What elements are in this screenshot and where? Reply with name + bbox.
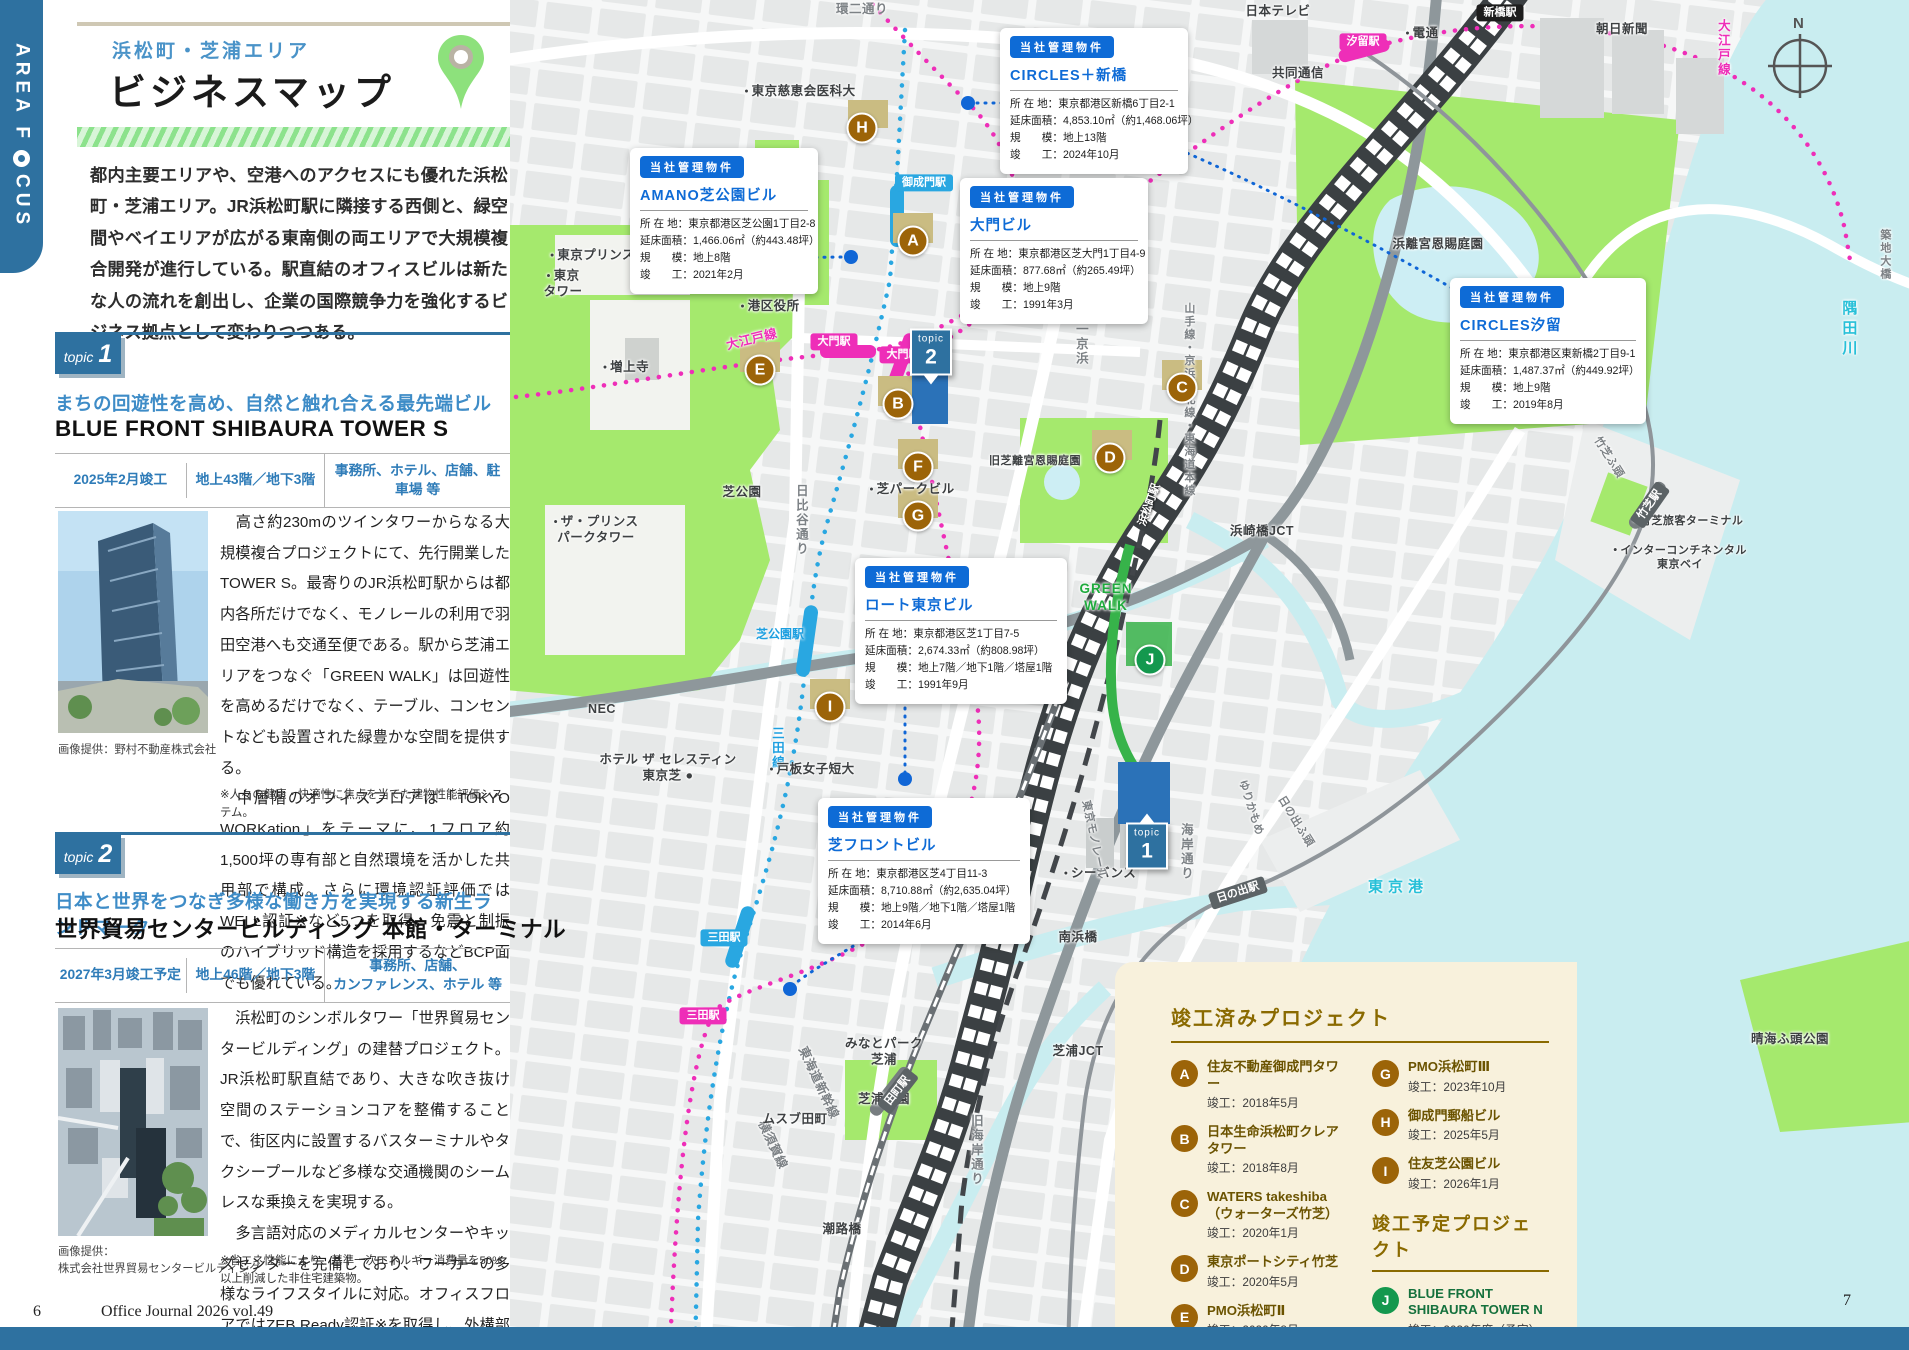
property-detail-row: 規 模：地上9階 (1460, 380, 1636, 397)
property-detail-row: 規 模：地上9階 (970, 280, 1138, 297)
map-label: 海岸通り (1177, 823, 1193, 881)
map-label: 電通 (1405, 26, 1438, 42)
map-label: GREEN WALK (1079, 581, 1132, 615)
map-label: 竹芝ふ頭 (1590, 435, 1626, 481)
station-label: 大門駅 (811, 333, 858, 350)
property-detail-row: 竣 工：1991年3月 (970, 297, 1138, 314)
map-label: 隅田川 (1839, 300, 1858, 360)
property-detail-row: 延床面積：877.68㎡（約265.49坪） (970, 263, 1138, 280)
map-label: 環二通り (836, 2, 888, 18)
property-callout-header: 当社管理物件 (865, 566, 969, 588)
map-label: 芝浦JCT (1052, 1044, 1103, 1060)
property-detail-row: 延床面積：4,853.10㎡（約1,468.06坪） (1010, 113, 1178, 130)
property-detail-row: 所 在 地：東京都港区新橋6丁目2-1 (1010, 96, 1178, 113)
property-detail-row: 竣 工：2014年6月 (828, 917, 1020, 934)
map-label: 潮路橋 (822, 1222, 861, 1238)
map-label: 朝日新聞 (1596, 22, 1648, 38)
property-detail-row: 延床面積：1,466.06㎡（約443.48坪） (640, 233, 808, 250)
property-callout: 当社管理物件CIRCLES＋新橋所 在 地：東京都港区新橋6丁目2-1延床面積：… (1000, 28, 1188, 174)
map-label: 日比谷通り (792, 484, 808, 557)
project-marker-J: J (1135, 645, 1166, 676)
project-marker-D: D (1095, 443, 1126, 474)
project-marker-F: F (903, 452, 934, 483)
map-label: 東京慈恵会医科大 (744, 84, 855, 100)
map-label: ムスブ田町 (762, 1112, 827, 1128)
map-label: 大江戸線 (725, 326, 779, 354)
property-detail-row: 延床面積：1,487.37㎡（約449.92坪） (1460, 363, 1636, 380)
property-callout-header: 当社管理物件 (640, 156, 744, 178)
station-label: 三田駅 (680, 1007, 727, 1024)
legend-item-H: H御成門郵船ビル竣工：2025年5月 (1372, 1108, 1549, 1144)
map-label: 日の出ふ頭 (1274, 794, 1316, 850)
map-label: 日本テレビ (1245, 4, 1310, 20)
property-callout: 当社管理物件ロート東京ビル所 在 地：東京都港区芝1丁目7-5延床面積：2,67… (855, 558, 1067, 704)
legend-item-A: A住友不動産御成門タワー竣工：2018年5月 (1171, 1059, 1348, 1111)
project-marker-B: B (883, 389, 914, 420)
station-label: 芝公園駅 (756, 627, 804, 641)
property-detail-row: 竣 工：2019年8月 (1460, 397, 1636, 414)
property-callout-header: 当社管理物件 (828, 806, 932, 828)
station-label: 日の出駅 (1208, 876, 1268, 910)
map-label: 浜離宮恩賜庭園 (1392, 237, 1483, 253)
map-label: 東京港 (1368, 879, 1428, 898)
map-label: 築地大橋 (1877, 229, 1891, 281)
property-detail-row: 延床面積：8,710.88㎡（約2,635.04坪） (828, 883, 1020, 900)
property-detail-row: 竣 工：2024年10月 (1010, 147, 1178, 164)
legend-panel: 竣工済みプロジェクト A住友不動産御成門タワー竣工：2018年5月B日本生命浜松… (1115, 962, 1577, 1328)
property-detail-row: 規 模：地上8階 (640, 250, 808, 267)
property-callout: 当社管理物件芝フロントビル所 在 地：東京都港区芝4丁目11-3延床面積：8,7… (818, 798, 1030, 944)
property-detail-row: 所 在 地：東京都港区芝4丁目11-3 (828, 866, 1020, 883)
map-label: 港区役所 (740, 299, 799, 315)
map-label: 芝パークビル (869, 482, 954, 498)
property-detail-row: 所 在 地：東京都港区芝公園1丁目2-8 (640, 216, 808, 233)
station-label: 汐留駅 (1340, 33, 1387, 50)
property-detail-row: 竣 工：1991年9月 (865, 677, 1057, 694)
property-name: CIRCLES＋新橋 (1010, 64, 1178, 91)
project-marker-G: G (903, 501, 934, 532)
map-label: 旧芝離宮恩賜庭園 (989, 455, 1081, 469)
station-label: 新橋駅 (1477, 4, 1524, 21)
map-label: 南浜橋 (1058, 930, 1097, 946)
station-label: 浜松町駅 (1136, 482, 1163, 528)
property-detail-row: 所 在 地：東京都港区東新橋2丁目9-1 (1460, 346, 1636, 363)
property-detail-row: 竣 工：2021年2月 (640, 267, 808, 284)
topic-map-tag-1: topic1 (1126, 823, 1168, 870)
station-label: 三田駅 (701, 929, 748, 946)
map-label: 大江戸線 (1714, 19, 1730, 77)
legend-item-B: B日本生命浜松町クレアタワー竣工：2018年8月 (1171, 1124, 1348, 1176)
area-focus-text-top: AREA F (11, 43, 33, 143)
property-detail-row: 所 在 地：東京都港区芝大門1丁目4-9 (970, 246, 1138, 263)
map-label: 芝公園 (722, 485, 761, 501)
map-label: 増上寺 (603, 360, 649, 376)
station-label: 御成門駅 (895, 174, 953, 191)
legend-done-title: 竣工済みプロジェクト (1171, 1002, 1549, 1043)
map-label: ホテル ザ セレスティン 東京芝 ● (599, 752, 736, 783)
property-name: ロート東京ビル (865, 594, 1057, 621)
legend-item-I: I住友芝公園ビル竣工：2026年1月 (1372, 1156, 1549, 1192)
map-label: 東海道新幹線 (794, 1044, 841, 1121)
property-name: 芝フロントビル (828, 834, 1020, 861)
project-marker-I: I (815, 692, 846, 723)
legend-planned-title: 竣工予定プロジェクト (1372, 1210, 1549, 1272)
property-detail-row: 規 模：地上7階／地下1階／塔屋1階 (865, 660, 1057, 677)
project-marker-H: H (847, 113, 878, 144)
map-label: みなとパーク 芝浦 (845, 1036, 923, 1067)
property-detail-row: 所 在 地：東京都港区芝1丁目7-5 (865, 626, 1057, 643)
legend-column-1: A住友不動産御成門タワー竣工：2018年5月B日本生命浜松町クレアタワー竣工：2… (1171, 1059, 1348, 1350)
focus-ring-icon (13, 150, 30, 167)
map-label: 共同通信 (1272, 66, 1324, 82)
property-callout: 当社管理物件AMANO芝公園ビル所 在 地：東京都港区芝公園1丁目2-8延床面積… (630, 148, 818, 294)
property-detail-row: 規 模：地上9階／地下1階／塔屋1階 (828, 900, 1020, 917)
property-name: AMANO芝公園ビル (640, 184, 808, 211)
legend-item-C: CWATERS takeshiba（ウォーターズ竹芝）竣工：2020年1月 (1171, 1189, 1348, 1241)
page-number-right: 7 (1843, 1292, 1851, 1310)
map-label: NEC (588, 702, 616, 718)
property-detail-row: 延床面積：2,674.33㎡（約808.98坪） (865, 643, 1057, 660)
topic-map-tag-2: topic2 (910, 329, 952, 376)
legend-item-G: GPMO浜松町Ⅲ竣工：2023年10月 (1372, 1059, 1549, 1095)
map-label: 東京 タワー (543, 268, 582, 299)
map-overlays: 環二通り日本テレビ電通朝日新聞共同通信東京慈恵会医科大東京 タワー東京プリンスホ… (0, 0, 1909, 1350)
map-label: 浜崎橋JCT (1230, 524, 1294, 540)
property-detail-row: 規 模：地上13階 (1010, 130, 1178, 147)
bottom-bar (0, 1327, 1909, 1350)
property-callout: 当社管理物件大門ビル所 在 地：東京都港区芝大門1丁目4-9延床面積：877.6… (960, 178, 1148, 324)
map-label: ゆりかもめ (1235, 779, 1266, 838)
property-callout-header: 当社管理物件 (970, 186, 1074, 208)
project-marker-C: C (1167, 373, 1198, 404)
map-label: 旧海岸通り (967, 1114, 983, 1187)
legend-item-D: D東京ポートシティ竹芝竣工：2020年5月 (1171, 1254, 1348, 1290)
area-focus-tab: AREA F CUS (0, 0, 43, 273)
project-marker-E: E (745, 355, 776, 386)
map-label: 戸板女子短大 (769, 762, 854, 778)
map-label: ザ・プリンス パークタワー (554, 514, 639, 545)
property-callout-header: 当社管理物件 (1010, 36, 1114, 58)
property-name: 大門ビル (970, 214, 1138, 241)
magazine-spread: N 環二通り日本テレビ電通朝日新聞共同通信東京慈恵会医科大東京 タワー東京プリン… (0, 0, 1909, 1350)
property-callout: 当社管理物件CIRCLES汐留所 在 地：東京都港区東新橋2丁目9-1延床面積：… (1450, 278, 1646, 424)
map-label: 晴海ふ頭公園 (1751, 1032, 1829, 1048)
area-focus-text-bottom: CUS (11, 174, 33, 229)
property-name: CIRCLES汐留 (1460, 314, 1636, 341)
property-callout-header: 当社管理物件 (1460, 286, 1564, 308)
legend-column-2: GPMO浜松町Ⅲ竣工：2023年10月H御成門郵船ビル竣工：2025年5月I住友… (1372, 1059, 1549, 1350)
map-label: インターコンチネンタル 東京ベイ (1613, 544, 1747, 572)
project-marker-A: A (898, 226, 929, 257)
